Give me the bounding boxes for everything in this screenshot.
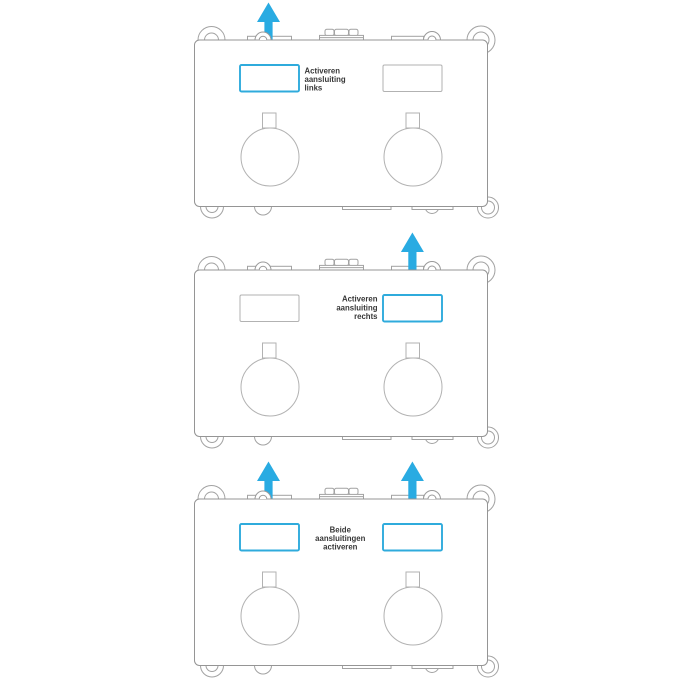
svg-text:rechts: rechts <box>354 312 378 321</box>
svg-text:links: links <box>305 84 323 93</box>
svg-text:activeren: activeren <box>323 543 357 552</box>
